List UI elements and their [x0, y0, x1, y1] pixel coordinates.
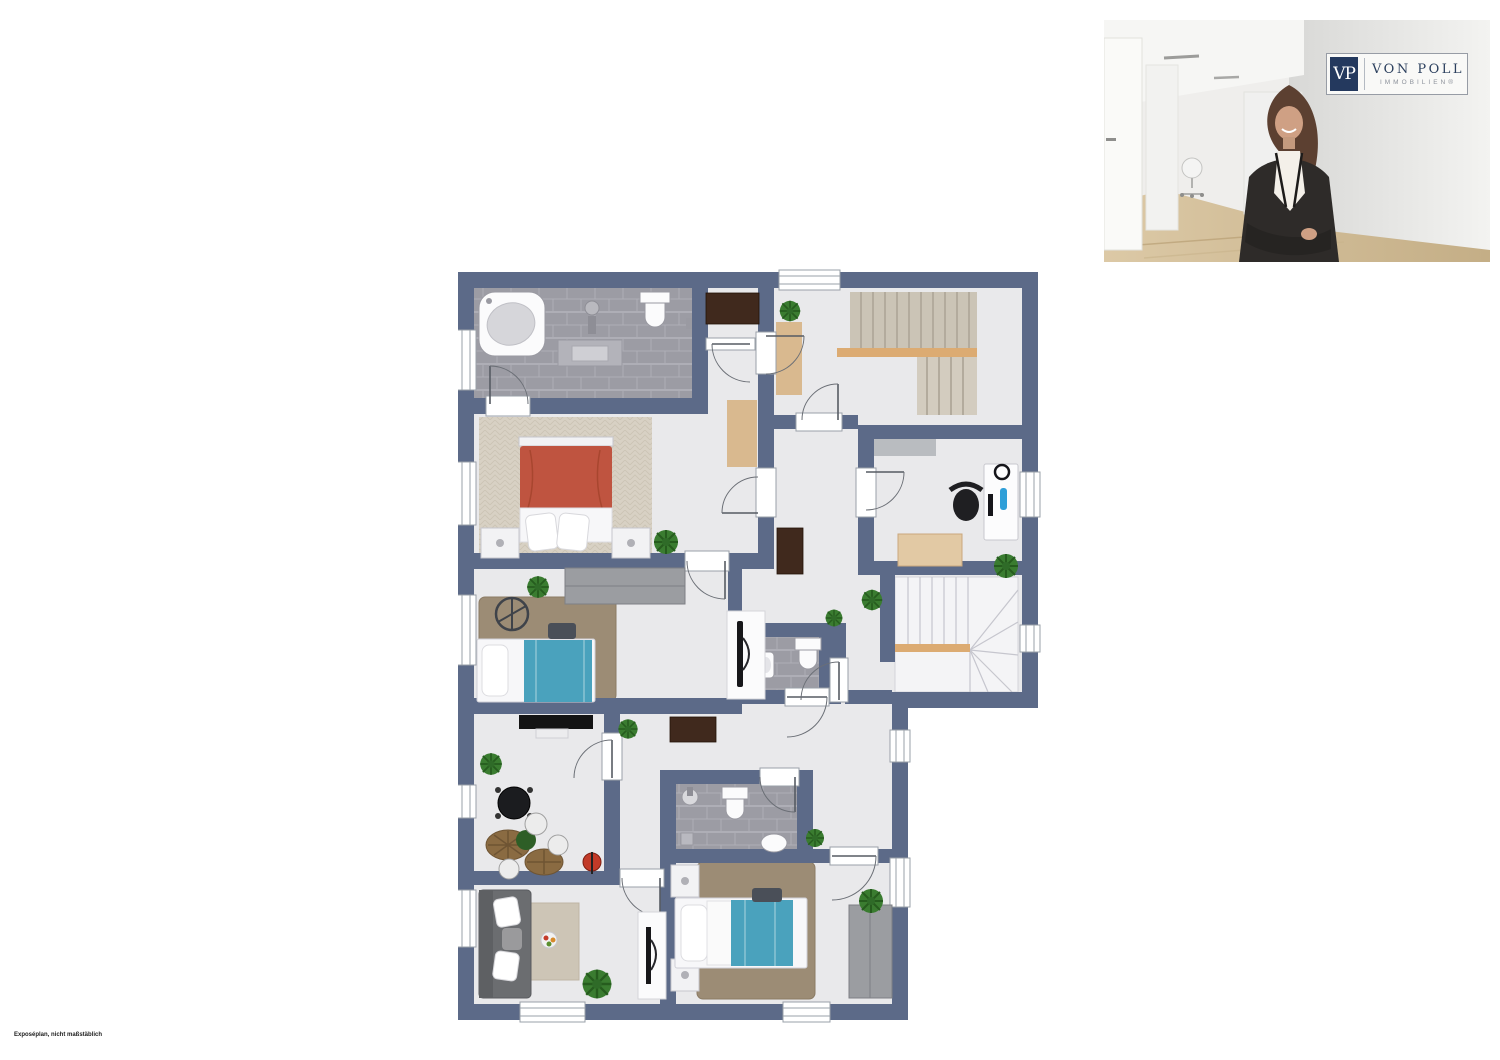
cushion — [752, 888, 782, 902]
runner-rug — [727, 400, 757, 467]
tv-panel — [727, 611, 765, 699]
cushion — [548, 623, 576, 639]
cushion — [502, 928, 522, 950]
window — [890, 730, 910, 762]
plant — [527, 576, 549, 598]
window — [458, 595, 476, 665]
pillow — [525, 512, 559, 551]
paper-holder — [686, 318, 692, 329]
window — [779, 270, 840, 290]
window — [458, 785, 476, 818]
round-table — [498, 787, 530, 819]
plant — [862, 590, 882, 610]
shelf — [536, 729, 568, 738]
page: VP VON POLL IMMOBILIEN® — [0, 0, 1500, 1060]
window — [783, 1002, 830, 1022]
tv-panel — [638, 912, 666, 999]
vonpoll-logo: VP VON POLL IMMOBILIEN® — [1326, 53, 1468, 95]
plant — [826, 610, 843, 627]
bed-footboard — [519, 437, 613, 446]
tv-board — [519, 715, 593, 729]
window — [458, 330, 476, 390]
pillow — [492, 950, 520, 981]
single-bed-blue — [731, 900, 793, 966]
single-bed-blue — [524, 640, 592, 702]
pillow — [493, 896, 521, 928]
window — [458, 890, 476, 947]
window — [890, 858, 910, 907]
plant — [654, 530, 678, 554]
side-table — [898, 534, 962, 566]
logo-monogram: VP — [1330, 57, 1358, 91]
disclaimer-text: Exposéplan, nicht maßstäblich — [14, 1032, 102, 1038]
hall-dresser — [777, 528, 803, 574]
window — [1020, 625, 1040, 652]
winder-staircase — [893, 577, 1018, 692]
glass-partition — [1146, 65, 1178, 230]
plant — [994, 554, 1018, 578]
plant — [480, 753, 502, 775]
fruit-bowl-table — [541, 932, 557, 948]
plant — [859, 889, 883, 913]
bed-sheet — [707, 901, 733, 965]
sideboard — [670, 717, 716, 742]
pillow — [556, 513, 590, 552]
pillow — [482, 645, 508, 696]
plant — [583, 970, 612, 999]
plant — [618, 719, 637, 738]
plant — [780, 301, 800, 321]
washbasin — [761, 834, 787, 852]
logo-subtitle: IMMOBILIEN® — [1380, 79, 1456, 86]
tub-faucet — [486, 298, 492, 304]
agent-photo: VP VON POLL IMMOBILIEN® — [1104, 20, 1490, 262]
desk-item — [1000, 488, 1007, 510]
shower-drain — [681, 833, 693, 845]
corner-sofa — [479, 890, 531, 998]
window — [458, 462, 476, 525]
window — [1020, 472, 1040, 517]
monitor — [988, 494, 993, 516]
runner-rug — [776, 322, 802, 395]
logo-name: VON POLL — [1372, 62, 1464, 77]
window — [520, 1002, 585, 1022]
pillow — [681, 905, 707, 961]
dresser — [706, 293, 759, 324]
plant — [806, 829, 824, 847]
logo-divider — [1364, 58, 1365, 90]
door-panel — [1104, 38, 1142, 250]
floor-plan — [458, 262, 1048, 1052]
